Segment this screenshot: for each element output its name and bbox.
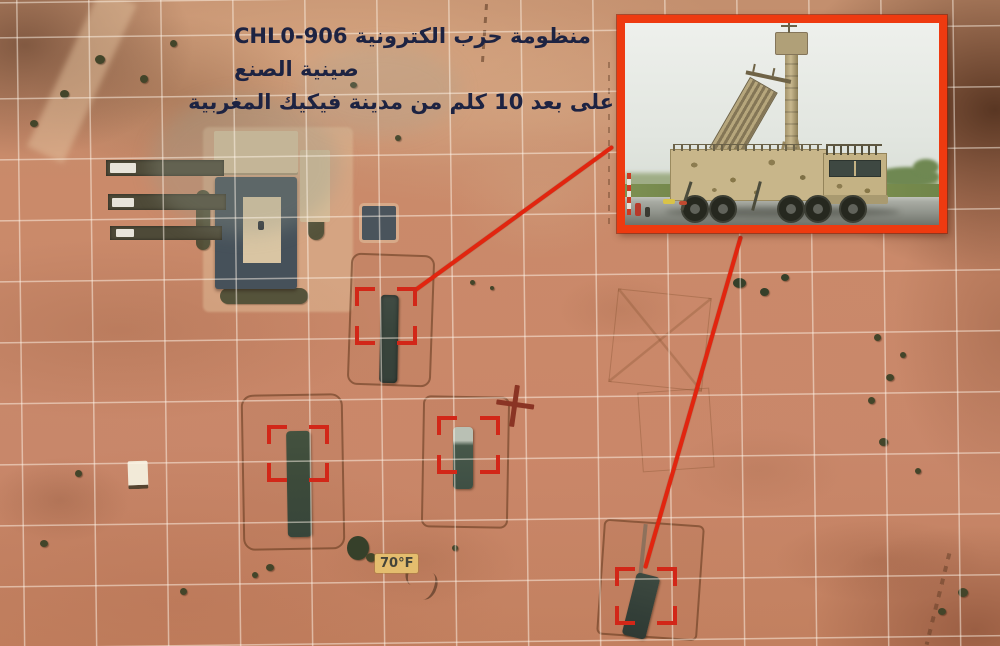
roadside-barrier bbox=[663, 199, 675, 204]
antenna-crossbar bbox=[781, 25, 797, 27]
target-bracket-3 bbox=[437, 416, 500, 474]
windshield bbox=[829, 160, 881, 177]
truck-wheel bbox=[839, 195, 867, 223]
truck-cab bbox=[823, 153, 887, 201]
wheel-hub bbox=[690, 204, 700, 214]
bracket-corner bbox=[309, 463, 329, 482]
bracket-corner bbox=[657, 606, 677, 625]
map-caption: منظومة حرب الكترونية CHL0-906 صينية الصن… bbox=[234, 20, 614, 119]
target-bracket-1 bbox=[355, 287, 417, 345]
wheel-hub bbox=[786, 204, 796, 214]
bracket-corner bbox=[355, 287, 375, 306]
bracket-corner bbox=[309, 425, 329, 444]
target-bracket-4 bbox=[615, 567, 677, 625]
ew-system-photo bbox=[625, 23, 939, 225]
bracket-corner bbox=[267, 463, 287, 482]
bracket-corner bbox=[397, 326, 417, 345]
truck-wheel bbox=[804, 195, 832, 223]
truck-equipment-cabinet bbox=[670, 149, 827, 201]
bracket-corner bbox=[615, 606, 635, 625]
temperature-label: 70°F bbox=[380, 556, 413, 571]
temperature-badge: 70°F bbox=[375, 554, 418, 573]
wheel-hub bbox=[718, 204, 728, 214]
bracket-corner bbox=[480, 416, 500, 435]
bracket-corner bbox=[355, 326, 375, 345]
bracket-corner bbox=[397, 287, 417, 306]
person-figure bbox=[635, 203, 641, 216]
striped-marker-pole bbox=[627, 173, 631, 215]
target-bracket-2 bbox=[267, 425, 329, 482]
photo-trees bbox=[913, 159, 939, 175]
person-figure bbox=[645, 207, 650, 217]
bracket-corner bbox=[615, 567, 635, 586]
bracket-corner bbox=[437, 416, 457, 435]
wheel-hub bbox=[813, 204, 823, 214]
telescopic-mast bbox=[785, 51, 798, 151]
caption-line-2: صينية الصنع bbox=[234, 53, 614, 86]
roadside-barrier bbox=[679, 201, 687, 205]
truck-wheel bbox=[777, 195, 805, 223]
wheel-hub bbox=[848, 204, 858, 214]
annotated-satellite-map: 70°F منظومة حرب الكترونية CHL0-906 صينية… bbox=[0, 0, 1000, 646]
caption-line-3: على بعد 10 كلم من مدينة فيكيك المغربية bbox=[234, 86, 614, 119]
photo-inset-frame bbox=[617, 15, 947, 233]
mast-top-unit bbox=[775, 32, 808, 55]
bracket-corner bbox=[437, 455, 457, 474]
bracket-corner bbox=[267, 425, 287, 444]
bracket-corner bbox=[657, 567, 677, 586]
caption-line-1: منظومة حرب الكترونية CHL0-906 bbox=[234, 20, 614, 53]
windshield-pillar bbox=[854, 161, 856, 176]
bracket-corner bbox=[480, 455, 500, 474]
truck-wheel bbox=[709, 195, 737, 223]
